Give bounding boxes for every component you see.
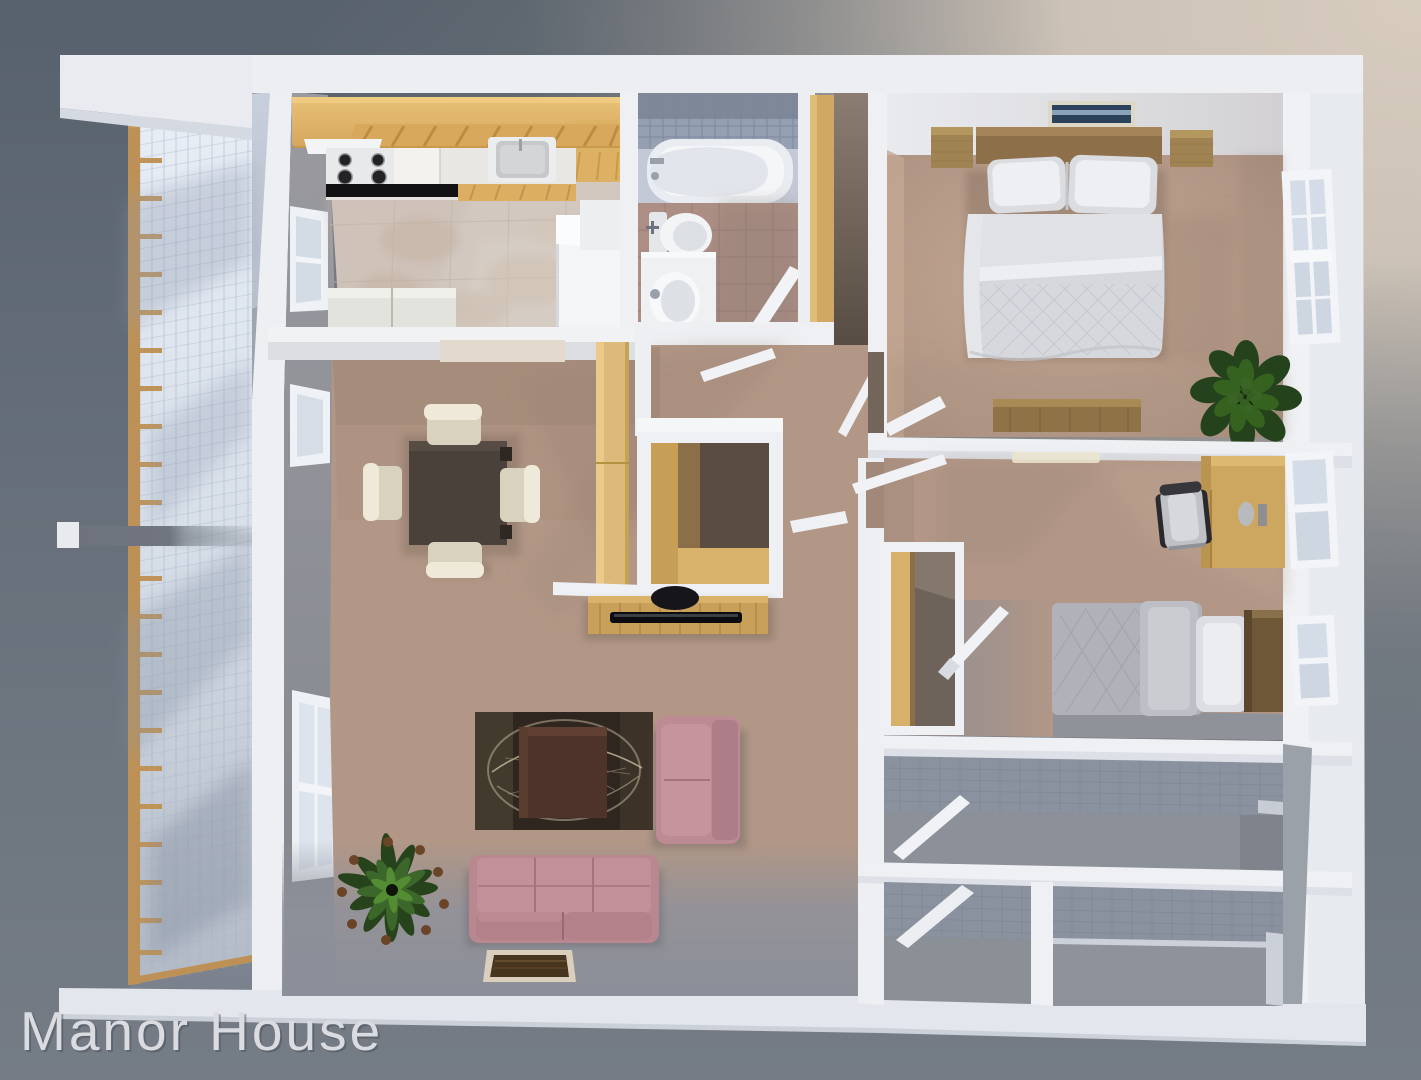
svg-text:Manor House: Manor House — [20, 1000, 383, 1062]
